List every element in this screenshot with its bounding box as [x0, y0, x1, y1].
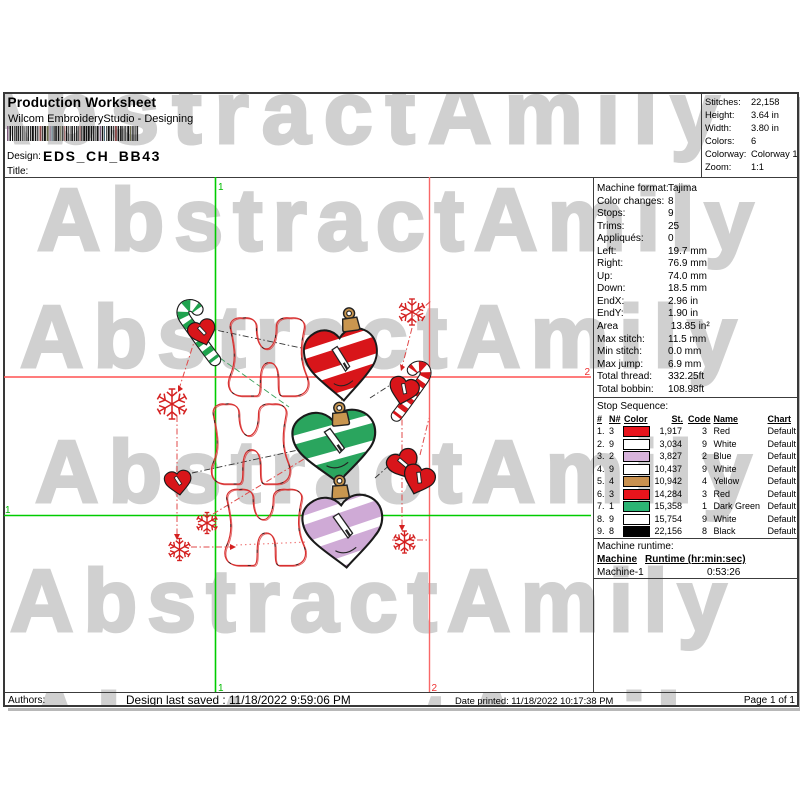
svg-text:2: 2: [432, 683, 438, 694]
svg-text:1: 1: [218, 683, 224, 694]
svg-text:1: 1: [5, 505, 11, 516]
svg-text:1: 1: [218, 182, 224, 193]
svg-text:2: 2: [585, 367, 591, 378]
